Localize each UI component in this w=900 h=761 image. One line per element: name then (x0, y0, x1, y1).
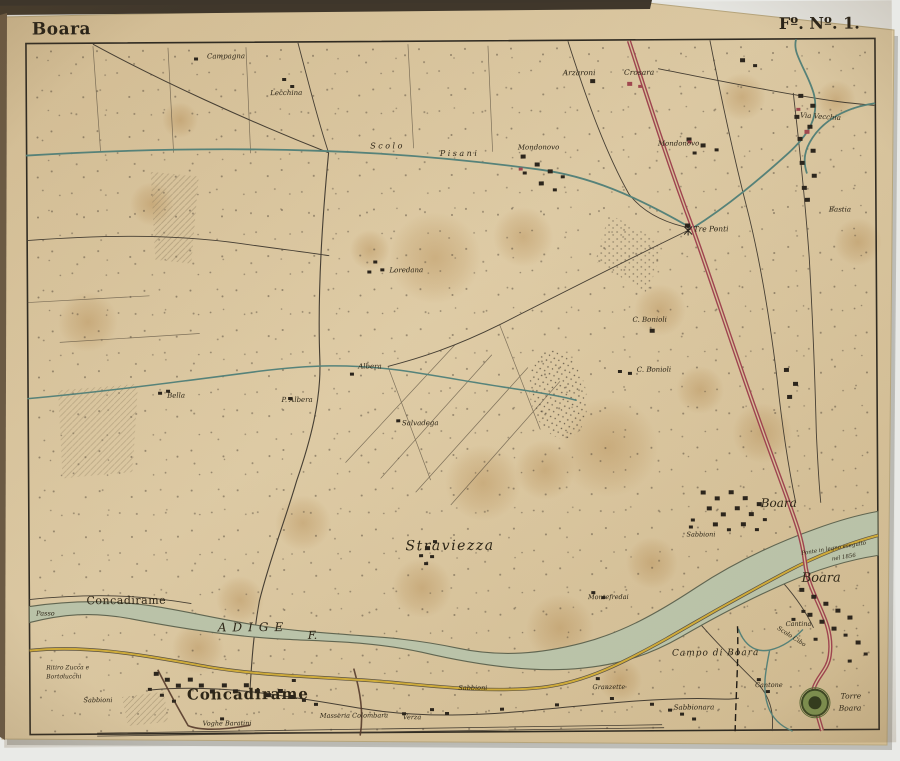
scanned-map-photo: Boara Fº. Nº. 1. Campagna Lecchina Arzar… (0, 0, 900, 761)
map-content: Boara Fº. Nº. 1. Campagna Lecchina Arzar… (0, 0, 896, 747)
vignette (0, 0, 896, 747)
map-sheet-svg: Boara Fº. Nº. 1. Campagna Lecchina Arzar… (0, 0, 900, 761)
